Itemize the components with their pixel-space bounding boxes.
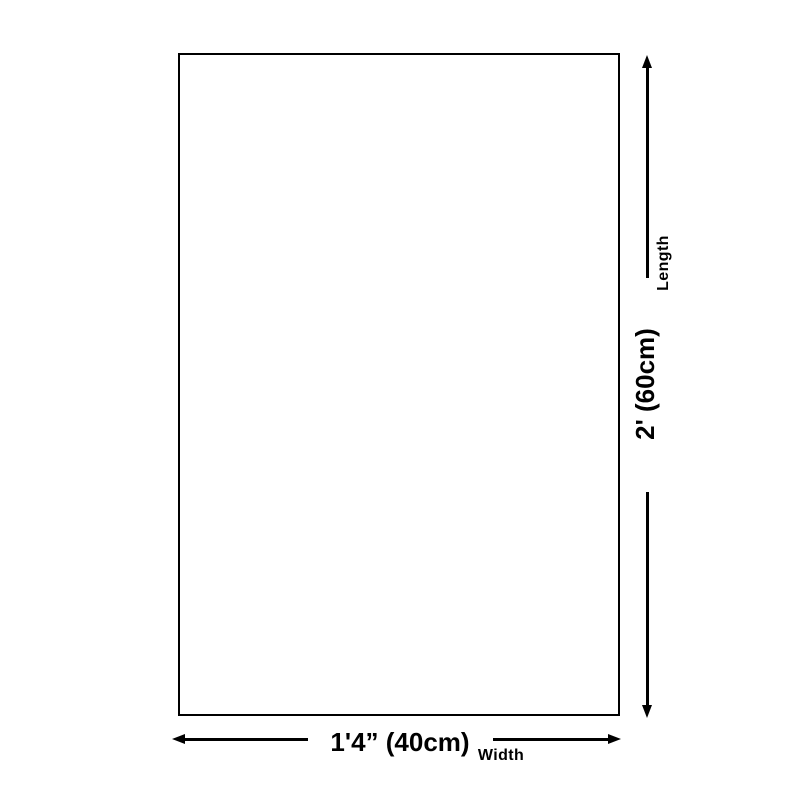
product-outline	[178, 53, 620, 716]
length-arrow-lower-line	[646, 492, 649, 707]
width-axis-label: Width	[478, 748, 524, 764]
length-value-label: 2' (60cm)	[632, 328, 658, 440]
width-arrow-right-line	[493, 738, 610, 741]
width-value-label: 1'4” (40cm)	[330, 729, 469, 755]
arrow-down-icon	[642, 705, 652, 718]
dimension-diagram: Length 2' (60cm) 1'4” (40cm) Width	[0, 0, 800, 800]
length-axis-label: Length	[656, 235, 672, 291]
arrow-right-icon	[608, 734, 621, 744]
length-arrow-upper-line	[646, 65, 649, 278]
width-arrow-left-line	[184, 738, 308, 741]
